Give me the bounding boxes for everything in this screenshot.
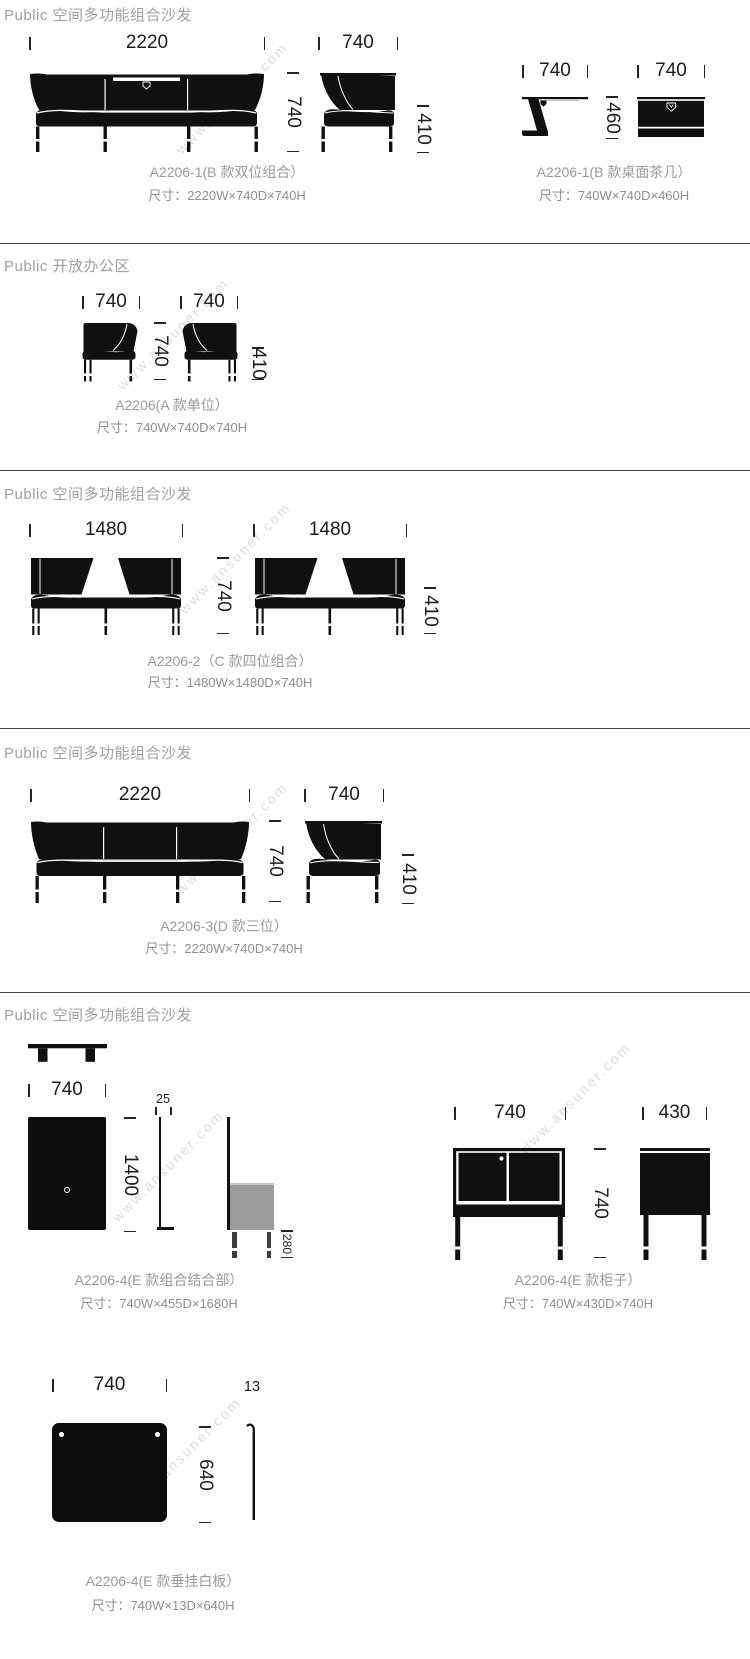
sofa-double-front-drawing [29,72,265,152]
model-size: 尺寸：2220W×740D×740H [74,938,374,957]
cabinet-side-attachment [230,1183,274,1230]
sofa-triple-front-drawing [30,820,250,903]
dim-sofa-height: 740 [285,72,301,152]
furniture-spec-sheet: www.ansuner.com www.ansuner.com www.ansu… [0,0,750,1659]
dim-sofa3-height: 740 [267,820,283,902]
model-size: 尺寸：740W×740D×460H [464,185,750,204]
section-title: Public 空间多功能组合沙发 [4,4,192,25]
model-size: 尺寸：740W×740D×740H [22,417,322,436]
dim-tick [155,1107,157,1115]
tea-table-front-drawing [637,97,705,138]
dim-cabinet-height: 280 [279,1230,295,1258]
whiteboard-front-drawing [52,1423,167,1522]
dim-sofa-side-width: 740 [318,36,398,52]
dim-sofa3-side-width: 740 [304,788,384,804]
section-divider [0,992,750,993]
model-size: 尺寸：740W×13D×640H [13,1595,313,1614]
dim-sofa4-seat-height: 410 [422,587,438,634]
section-divider [0,728,750,729]
panel-side-drawing [159,1117,162,1228]
section-divider [0,243,750,244]
model-size: 尺寸：2220W×740D×740H [77,185,377,204]
dim-table-side-width: 740 [522,64,588,80]
dim-sofa4-width-a: 1480 [29,523,183,539]
model-size: 尺寸：740W×430D×740H [428,1293,728,1312]
model-name: A2206-4(E 款组合结合部） [9,1270,309,1290]
panel-hole [64,1187,70,1193]
sofa-quad-front-drawing [29,557,183,635]
mount-hole [59,1432,64,1437]
chair-side-drawing [180,322,238,382]
dim-table-front-width: 740 [637,64,705,80]
dim-board-width: 740 [52,1378,167,1394]
dim-chair-front-width: 740 [82,295,140,311]
model-name: A2206(A 款单位） [22,395,322,415]
dim-cab-height: 740 [592,1148,608,1258]
section-divider [0,470,750,471]
cabinet-leg [267,1232,272,1258]
bench-top-view-drawing [28,1044,107,1063]
cabinet-leg [232,1232,237,1258]
dim-board-height: 640 [197,1426,213,1523]
section-title: Public 空间多功能组合沙发 [4,1004,192,1025]
watermark: www.ansuner.com [95,1093,241,1239]
section-title: Public 空间多功能组合沙发 [4,483,192,504]
model-size: 尺寸：1480W×1480D×740H [80,672,380,691]
dim-chair-seat-height: 410 [250,347,266,380]
model-name: A2206-3(D 款三位） [74,916,374,936]
sofa-side-drawing [318,72,398,152]
dim-chair-height: 740 [152,322,168,380]
dim-cab-width: 740 [454,1106,566,1122]
dim-tick [170,1107,172,1115]
chair-front-drawing [82,322,140,382]
model-name: A2206-1(B 款桌面茶几） [464,162,750,182]
model-name: A2206-4(E 款垂挂白板） [13,1571,313,1591]
model-name: A2206-2（C 款四位组合） [80,651,380,671]
dim-sofa3-width: 2220 [30,788,250,804]
tea-table-side-drawing [522,97,588,138]
dim-panel-width: 740 [28,1083,106,1099]
panel-side-foot [157,1227,174,1230]
section-title: Public 开放办公区 [4,255,130,276]
panel-front-drawing [28,1117,106,1230]
cabinet-front-drawing [453,1148,565,1262]
cabinet-side-drawing [640,1148,710,1262]
sofa-quad-side-drawing [253,557,407,635]
dim-panel-height: 1400 [122,1117,138,1232]
dim-sofa4-width-b: 1480 [253,523,407,539]
dim-table-height: 460 [604,96,620,139]
model-name: A2206-1(B 款双位组合） [77,162,377,182]
dim-board-thickness: 13 [237,1379,267,1395]
model-size: 尺寸：740W×455D×1680H [9,1293,309,1312]
dim-cab-depth: 430 [642,1106,707,1122]
dim-chair-side-width: 740 [180,295,238,311]
dim-panel-thickness: 25 [148,1092,178,1106]
dim-sofa-width: 2220 [29,36,265,52]
sofa-triple-side-drawing [303,820,384,903]
dim-sofa3-seat-height: 410 [400,854,416,904]
mount-hole [155,1432,160,1437]
model-name: A2206-4(E 款柜子） [428,1270,728,1290]
dim-seat-height: 410 [415,105,431,153]
section-title: Public 空间多功能组合沙发 [4,742,192,763]
dim-sofa4-height: 740 [215,557,231,634]
whiteboard-side-drawing [244,1422,258,1522]
